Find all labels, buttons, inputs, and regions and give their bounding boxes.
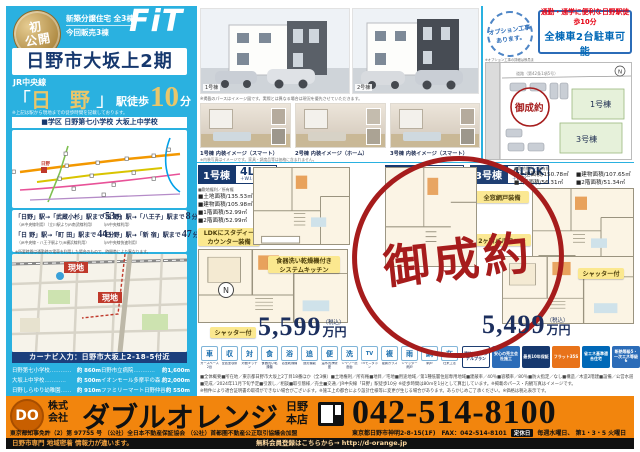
siteplan-road-label: 道路（第42条1項5号） — [516, 70, 558, 76]
route-item: 「日 野」駅→「新 宿」駅まで47分 （JR中央線快速利用） — [100, 230, 185, 248]
route-label: 「日 野」駅→「八王子」駅まで — [100, 212, 185, 221]
equipment-icon-car: 車カースペース2台 — [200, 346, 219, 369]
unit1-floorplan-2f — [253, 167, 350, 245]
walk-unit: 分 — [180, 93, 191, 109]
wall-swatch — [271, 128, 286, 145]
railway-map: 日野 — [12, 130, 187, 208]
genchi-marker: 現地 — [64, 262, 88, 273]
license-line: 東京都知事免許（2）第 97755 号 （公社）全日本不動産保証協会 （公社）首… — [10, 428, 297, 437]
footer-tagline: 日野市専門 地域密着 情報力が違います。 — [12, 438, 133, 449]
address-text: 東京都日野市神明2-8-15(1F) FAX：042-514-8101 — [352, 428, 507, 437]
promo-line1: 通勤・通学に便利な日野駅徒歩10分 — [540, 6, 630, 26]
exterior-caption-2: 2号棟 — [355, 84, 372, 91]
distance-item: ファミリーマート日野仲谷店約 550m — [101, 386, 190, 396]
company-prefix: 株式 会社 — [48, 401, 68, 424]
unit1-feature-study-counter: LDKにスタディー カウンター装備 — [198, 228, 260, 246]
interior-caption-2: 2号棟 内装イメージ（ホーム） — [295, 150, 386, 157]
phone-number: 042-514-8100 — [352, 394, 557, 432]
genchi-label-1: 現地 — [68, 263, 84, 273]
distance-item: 日野第七小学校…………約 860m — [12, 366, 101, 376]
wall-swatch — [460, 108, 475, 125]
unit1-number: 1号棟 — [198, 165, 235, 184]
exterior-render-2: 2号棟 — [352, 8, 479, 94]
legal-fine-print: ■全体概要■所在地／東京都日野市大坂上2丁目18番ほか（全3棟）■土地権利／所有… — [200, 374, 634, 395]
address-row: 東京都日野市神明2-8-15(1F) FAX：042-514-8101 定休日 … — [352, 428, 626, 437]
area-map-graphic: 現地 現地 — [12, 254, 187, 352]
interior-sofa — [213, 132, 251, 141]
school-district-bar: ■学区 日野第七小学校 大坂上中学校 — [12, 117, 187, 128]
route-item: 「日野」駅→「武蔵小杉」駅まで53分 （JR中央線利用）（立川駅よりJR南武線利… — [15, 212, 100, 230]
route-note: （JR中央線利用） — [102, 222, 185, 228]
distance-item: 日野市立病院…………約1,600m — [101, 366, 190, 376]
exterior-render-2-graphic — [353, 9, 479, 94]
train-access-box: 「日野」駅→「武蔵小杉」駅まで53分 （JR中央線利用）（立川駅よりJR南武線利… — [12, 210, 187, 252]
catch-copy: 新築分譲住宅 全3棟 今回販売3棟 — [66, 13, 134, 39]
unit3-price-unit: 万円 — [547, 324, 571, 336]
walk-note: ※上記は駅から現地までの徒歩時間を記載しております。 — [12, 110, 128, 116]
interior-photo-3 — [390, 103, 480, 148]
walk-prefix: 駅徒歩 — [116, 93, 149, 109]
distance-list: 日野第七小学校…………約 860m 日野市立病院…………約1,600m 大坂上中… — [12, 366, 190, 396]
badge-line2: 公開 — [24, 32, 52, 50]
route-item: 「日 野」駅→「八王子」駅まで8分 （JR中央線利用） — [100, 212, 185, 230]
footer-cta: 無料会員登録はこちらから→ http://d-orange.jp — [256, 438, 407, 449]
site-plan-graphic: 道路（第42条1項5号） 1号棟 3号棟 御成約 N — [486, 63, 632, 160]
station-name: 日 野 — [31, 90, 96, 110]
equipment-icon-storage: 収全居室収納 — [220, 346, 239, 369]
interior-caption-1: 1号棟 内装イメージ（スマート） — [200, 150, 291, 157]
wall-swatch — [366, 128, 381, 145]
exterior-caption-1: 1号棟 — [203, 84, 220, 91]
route-label: 「日野」駅→「武蔵小杉」駅まで — [15, 212, 104, 221]
equipment-icon-bath-dryer: 浴浴室乾燥機 — [280, 346, 299, 369]
unit3-price-number: 5,499 — [482, 314, 546, 336]
equipment-icon-reheating: 追追焚機能 — [300, 346, 319, 369]
railway-map-graphic: 日野 — [12, 130, 187, 208]
badge-warranty: 最長10年保証 — [522, 346, 550, 368]
interior-photo-2 — [295, 103, 386, 148]
route-item: 「日 野」駅→「町 田」駅まで44分 （JR中央線・八王子駅よりJR横浜線利用） — [15, 230, 100, 248]
promo-box: 通勤・通学に便利な日野駅徒歩10分 全棟車2台駐車可能 — [538, 10, 632, 54]
fit-brand-logo: FiT — [129, 4, 183, 39]
unit3-shutter-badge: シャッター付 — [578, 268, 624, 279]
unit1-price: 5,599 （税込） 万円 — [258, 316, 347, 338]
interior-window — [209, 109, 233, 129]
siteplan-lot3-label: 3号棟 — [576, 134, 597, 144]
exterior-render-1: 1号棟 — [200, 8, 350, 94]
route-note: （JR中央線・八王子駅よりJR横浜線利用） — [17, 240, 100, 246]
site-plan: 道路（第42条1項5号） 1号棟 3号棟 御成約 N — [485, 62, 632, 160]
exterior-render-1-graphic — [201, 9, 350, 94]
car-navi-bar: カーナビ入力：日野市大坂上2-18-5付近 — [12, 352, 187, 363]
unit1-areas: ■土地面積/135.53㎡ ■建物面積/105.98㎡ ■1階面積/52.99㎡… — [198, 193, 256, 225]
badge-insulation-grade: 断熱等級5・一次エネ等級6 — [612, 346, 640, 368]
equipment-icon-dishwasher: 食食器洗い乾燥機 — [260, 346, 279, 369]
interior-window — [399, 109, 423, 129]
badge-energy-standard: 省エネ基準適合住宅 — [582, 346, 610, 368]
exterior-note: ※掲載のパースはイメージ図です。実際とは異なる場合は現況を優先させていただきます… — [200, 96, 362, 102]
walk-minutes: 10 — [150, 85, 179, 110]
promo-line2: 全棟車2台駐車可能 — [540, 28, 630, 58]
siteplan-sold-label: 御成約 — [514, 102, 544, 114]
map-station-marker — [41, 167, 47, 173]
holiday-badge: 定休日 — [511, 429, 534, 437]
unit1-feature-dishwasher: 食器洗い乾燥機付き システムキッチン — [268, 256, 340, 273]
equipment-icon-intercom: TVTVモニタホン — [360, 346, 379, 369]
bracket-close: 」 — [96, 91, 115, 110]
station-walk-row: 「 日 野 」 駅徒歩 10 分 — [12, 85, 192, 110]
storefront-icon — [318, 402, 344, 426]
equipment-icon-vanity: 洗シャワー洗面台 — [340, 346, 359, 369]
genchi-marker: 現地 — [98, 292, 122, 303]
equipment-icon-glass: 複複層ガラス — [380, 346, 399, 369]
branch-name: 日野 本店 — [286, 400, 308, 426]
unit1-price-unit: 万円 — [323, 326, 347, 338]
bracket-open: 「 — [12, 91, 31, 110]
siteplan-lot1-label: 1号棟 — [590, 99, 611, 109]
distance-item: 大坂上中学校…………約 500m — [12, 376, 101, 386]
distance-item: 日野しらゆり幼稚園……約 910m — [12, 386, 101, 396]
svg-text:日野: 日野 — [41, 160, 50, 167]
holiday-text: 毎週水曜日、 第1・3・5 火曜日 — [537, 428, 626, 437]
interior-photo-1 — [200, 103, 291, 148]
interior-window — [304, 109, 328, 129]
interior-sofa — [308, 132, 346, 141]
property-title: 日野市大坂上2期 — [12, 48, 187, 75]
genchi-label-2: 現地 — [102, 293, 118, 303]
route-label: 「日 野」駅→「町 田」駅まで — [15, 230, 96, 239]
wall-swatch — [366, 108, 381, 125]
sold-stamp-text: 御成約 — [380, 216, 536, 297]
area-map: 現地 現地 — [12, 254, 187, 352]
equipment-icon-kitchen: 対対面キッチン — [240, 346, 259, 369]
flyer-page: 初 公開 新築分譲住宅 全3棟 今回販売3棟 FiT 日野市大坂上2期 JR中央… — [0, 0, 640, 452]
unit1-shutter-badge: シャッター付 — [210, 327, 256, 338]
badge-flat35s: フラット35S — [552, 346, 580, 368]
interior-sofa — [403, 132, 441, 141]
route-note: （JR中央線快速利用） — [102, 240, 185, 246]
catch-line2: 今回販売3棟 — [66, 27, 134, 38]
unit1-price-number: 5,599 — [258, 316, 322, 338]
plan-compass: N — [218, 282, 234, 298]
catch-line1: 新築分譲住宅 全3棟 — [66, 13, 134, 26]
route-minutes: 47 — [182, 230, 192, 239]
route-note: （JR中央線利用）（立川駅よりJR南武線利用） — [17, 222, 100, 228]
siteplan-north-label: N — [618, 70, 622, 76]
route-label: 「日 野」駅→「新 宿」駅まで — [100, 230, 181, 239]
wall-swatch — [460, 128, 475, 145]
wall-swatch — [271, 108, 286, 125]
equipment-icon-washlet: 便温水洗浄便座 — [320, 346, 339, 369]
footer-bottom-bar: 日野市専門 地域密着 情報力が違います。 無料会員登録はこちらから→ http:… — [6, 438, 634, 449]
unit3-price: 5,499 （税込） 万円 — [482, 314, 571, 336]
distance-item: イオンモール多摩平の森…約2,000m — [101, 376, 190, 386]
route-minutes: 8 — [186, 212, 191, 221]
